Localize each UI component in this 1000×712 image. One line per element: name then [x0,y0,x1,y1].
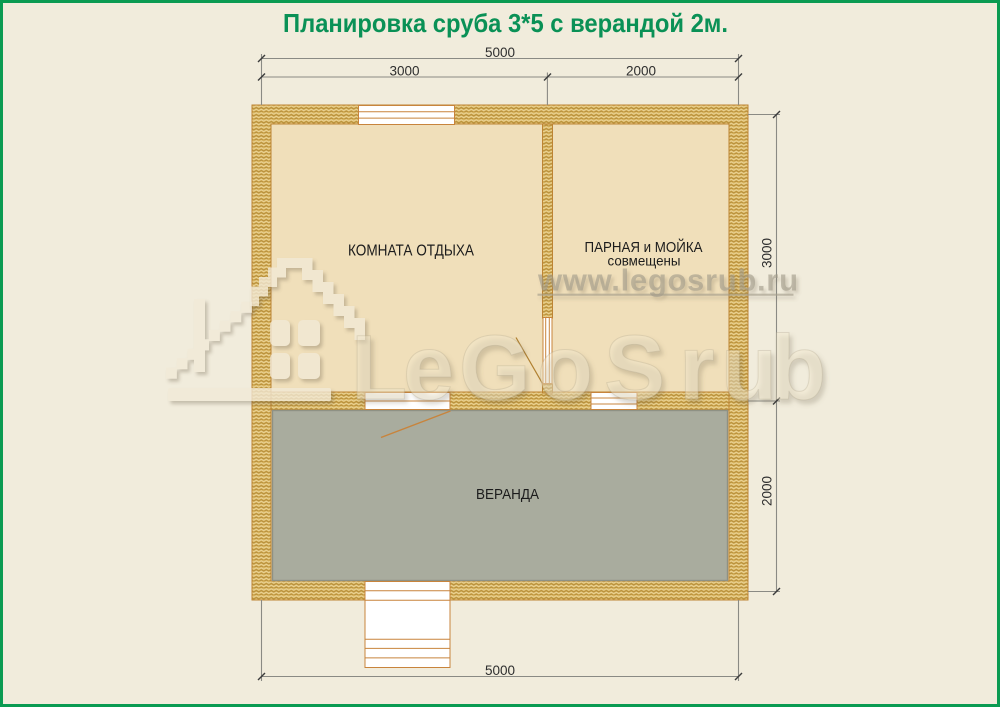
svg-text:Планировка сруба 3*5 с верандо: Планировка сруба 3*5 с верандой 2м. [283,8,728,38]
svg-text:LeGoSrub: LeGoSrub [351,317,826,419]
svg-text:ВЕРАНДА: ВЕРАНДА [476,486,539,503]
svg-text:3000: 3000 [389,64,419,79]
svg-text:2000: 2000 [760,476,775,506]
svg-text:5000: 5000 [485,45,515,60]
svg-text:КОМНАТА ОТДЫХА: КОМНАТА ОТДЫХА [348,243,474,260]
svg-text:2000: 2000 [626,64,656,79]
svg-text:5000: 5000 [485,663,515,678]
svg-text:www.legosrub.ru: www.legosrub.ru [537,263,798,298]
